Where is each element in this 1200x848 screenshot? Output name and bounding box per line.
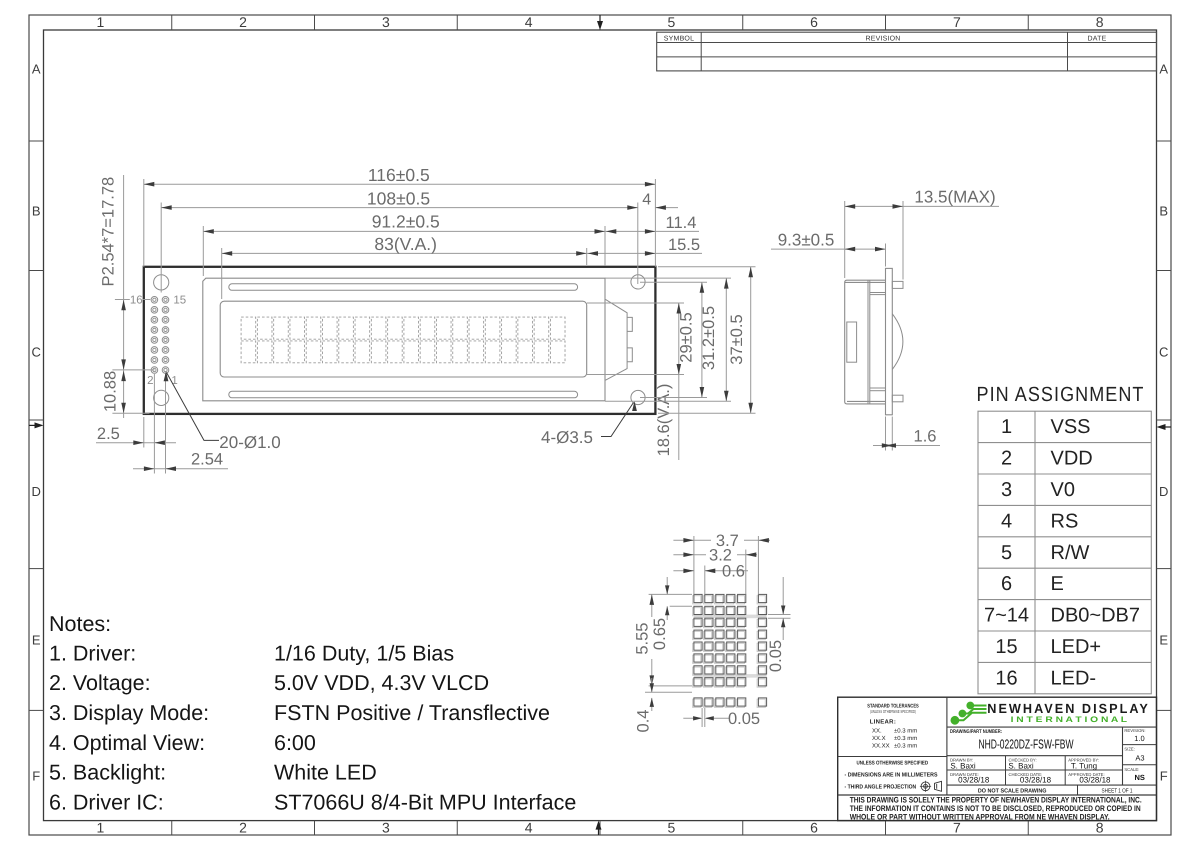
svg-text:6: 6	[810, 14, 818, 30]
svg-text:15: 15	[995, 636, 1017, 658]
svg-text:5.0V VDD, 4.3V VLCD: 5.0V VDD, 4.3V VLCD	[274, 671, 489, 695]
svg-text:8: 8	[1096, 820, 1104, 836]
svg-text:1. Driver:: 1. Driver:	[49, 641, 136, 665]
svg-text:(UNLESS OTHERWISE SPECIFIED): (UNLESS OTHERWISE SPECIFIED)	[870, 709, 916, 714]
svg-text:4: 4	[1001, 510, 1012, 532]
svg-text:5.55: 5.55	[634, 623, 652, 655]
svg-text:S. Baxi: S. Baxi	[950, 761, 976, 770]
svg-text:R/W: R/W	[1051, 542, 1090, 564]
svg-text:SYMBOL: SYMBOL	[664, 36, 694, 43]
svg-text:SIZE:: SIZE:	[1124, 746, 1134, 751]
svg-text:0.05: 0.05	[767, 640, 785, 672]
svg-text:03/28/18: 03/28/18	[958, 775, 990, 784]
svg-text:SCALE:: SCALE:	[1124, 767, 1139, 772]
svg-text:White LED: White LED	[274, 761, 377, 785]
svg-text:15: 15	[173, 294, 186, 306]
svg-text:6: 6	[1001, 573, 1012, 595]
svg-text:XX.X: XX.X	[872, 735, 886, 742]
svg-text:I N T E R N A T I O N A L: I N T E R N A T I O N A L	[1011, 715, 1128, 724]
svg-text:DRAWING/PART NUMBER:: DRAWING/PART NUMBER:	[950, 729, 1002, 735]
svg-text:9.3±0.5: 9.3±0.5	[778, 231, 835, 250]
svg-text:0.6: 0.6	[722, 562, 745, 580]
svg-text:16: 16	[995, 667, 1017, 689]
svg-text:V0: V0	[1051, 479, 1075, 501]
svg-text:C: C	[32, 345, 41, 360]
svg-text:2: 2	[239, 14, 247, 30]
svg-text:E: E	[1051, 573, 1064, 595]
svg-text:PIN ASSIGNMENT: PIN ASSIGNMENT	[977, 383, 1145, 406]
svg-text:B: B	[1159, 204, 1168, 219]
svg-text:108±0.5: 108±0.5	[367, 189, 430, 209]
svg-text:NHD-0220DZ-FSW-FBW: NHD-0220DZ-FSW-FBW	[979, 737, 1074, 752]
svg-text:1: 1	[97, 820, 105, 836]
svg-text:0.65: 0.65	[651, 618, 669, 650]
svg-text:RS: RS	[1051, 510, 1079, 532]
svg-text:DATE: DATE	[1088, 36, 1107, 43]
svg-text:WHOLE OR PART WITHOUT WRITTEN: WHOLE OR PART WITHOUT WRITTEN APPROVAL F…	[850, 812, 1110, 821]
svg-text:NEWHAVEN DISPLAY: NEWHAVEN DISPLAY	[987, 701, 1150, 716]
svg-text:P2.54*7=17.78: P2.54*7=17.78	[99, 177, 117, 287]
svg-text:A: A	[32, 62, 41, 77]
svg-text:116±0.5: 116±0.5	[368, 165, 430, 185]
svg-text:5: 5	[1001, 542, 1012, 564]
svg-text:2.5: 2.5	[97, 425, 120, 443]
svg-text:B: B	[32, 204, 41, 219]
svg-text:LINEAR:: LINEAR:	[870, 719, 896, 726]
svg-text:37±0.5: 37±0.5	[728, 314, 746, 364]
svg-text:LED+: LED+	[1051, 636, 1102, 658]
svg-text:31.2±0.5: 31.2±0.5	[700, 306, 718, 370]
svg-text:D: D	[32, 484, 41, 499]
svg-text:E: E	[32, 633, 41, 648]
svg-text:F: F	[32, 769, 40, 784]
svg-text:- THIRD ANGLE PROJECTION: - THIRD ANGLE PROJECTION	[845, 784, 917, 791]
svg-text:XX.: XX.	[872, 727, 882, 734]
svg-text:2. Voltage:: 2. Voltage:	[49, 671, 151, 695]
svg-text:3: 3	[382, 820, 390, 836]
svg-text:UNLESS OTHERWISE SPECIFIED: UNLESS OTHERWISE SPECIFIED	[856, 760, 928, 766]
svg-text:A: A	[1159, 62, 1168, 77]
svg-text:4. Optimal View:: 4. Optimal View:	[49, 731, 205, 755]
svg-text:NS: NS	[1134, 773, 1144, 782]
svg-text:FSTN Positive / Transflective: FSTN Positive / Transflective	[274, 701, 550, 725]
svg-text:1: 1	[1001, 416, 1012, 438]
svg-text:4: 4	[642, 192, 651, 209]
svg-text:4: 4	[525, 14, 533, 30]
svg-text:2: 2	[1001, 448, 1012, 470]
svg-text:7~14: 7~14	[984, 605, 1029, 627]
svg-text:D: D	[1159, 484, 1168, 499]
svg-text:A3: A3	[1135, 754, 1144, 763]
svg-text:5: 5	[668, 820, 676, 836]
svg-text:SHEET 1 OF 1: SHEET 1 OF 1	[1102, 787, 1134, 794]
svg-text:Notes:: Notes:	[49, 612, 111, 636]
svg-text:ST7066U 8/4-Bit MPU Interface: ST7066U 8/4-Bit MPU Interface	[274, 791, 576, 815]
svg-text:8: 8	[1096, 14, 1104, 30]
svg-text:6. Driver IC:: 6. Driver IC:	[49, 791, 164, 815]
svg-text:REVISION: REVISION	[865, 36, 900, 43]
svg-text:T. Tung: T. Tung	[1071, 761, 1097, 770]
svg-text:1.6: 1.6	[914, 428, 937, 446]
svg-text:0.4: 0.4	[635, 710, 653, 733]
svg-text:10.88: 10.88	[101, 371, 119, 412]
svg-text:XX.XX: XX.XX	[872, 743, 890, 750]
svg-text:83(V.A.): 83(V.A.)	[374, 234, 437, 254]
svg-text:1/16 Duty, 1/5 Bias: 1/16 Duty, 1/5 Bias	[274, 641, 454, 665]
svg-text:11.4: 11.4	[666, 214, 697, 232]
svg-text:4: 4	[525, 820, 533, 836]
svg-text:5: 5	[668, 14, 676, 30]
svg-text:LED-: LED-	[1051, 667, 1097, 689]
svg-text:6: 6	[810, 820, 818, 836]
svg-text:18.6(V.A.): 18.6(V.A.)	[655, 384, 673, 457]
svg-text:3: 3	[382, 14, 390, 30]
svg-text:VSS: VSS	[1051, 416, 1091, 438]
svg-text:16: 16	[130, 294, 143, 306]
svg-text:3: 3	[1001, 479, 1012, 501]
svg-text:13.5(MAX): 13.5(MAX)	[914, 188, 995, 207]
svg-text:±0.3 mm: ±0.3 mm	[894, 735, 917, 742]
svg-text:S. Baxi: S. Baxi	[1008, 761, 1034, 770]
svg-text:2: 2	[239, 820, 247, 836]
svg-text:2.54: 2.54	[191, 451, 223, 469]
svg-text:91.2±0.5: 91.2±0.5	[372, 212, 440, 232]
svg-text:DO NOT SCALE DRAWING: DO NOT SCALE DRAWING	[978, 787, 1047, 794]
svg-text:1: 1	[97, 14, 105, 30]
svg-text:REVISION:: REVISION:	[1124, 728, 1145, 733]
svg-text:±0.3 mm: ±0.3 mm	[894, 743, 917, 750]
svg-text:DB0~DB7: DB0~DB7	[1051, 605, 1141, 627]
svg-text:- DIMENSIONS ARE IN MILLIMETER: - DIMENSIONS ARE IN MILLIMETERS	[845, 771, 938, 778]
svg-text:E: E	[1159, 633, 1168, 648]
svg-text:F: F	[1160, 769, 1168, 784]
svg-text:C: C	[1159, 345, 1168, 360]
svg-text:20-Ø1.0: 20-Ø1.0	[219, 433, 280, 452]
svg-text:±0.3 mm: ±0.3 mm	[894, 727, 917, 734]
svg-text:1.0: 1.0	[1134, 734, 1144, 743]
svg-text:6:00: 6:00	[274, 731, 316, 755]
svg-text:VDD: VDD	[1051, 448, 1093, 470]
svg-text:03/28/18: 03/28/18	[1020, 775, 1052, 784]
svg-text:29±0.5: 29±0.5	[678, 312, 696, 362]
svg-text:5. Backlight:: 5. Backlight:	[49, 761, 166, 785]
svg-text:7: 7	[953, 14, 961, 30]
svg-text:4-Ø3.5: 4-Ø3.5	[541, 428, 593, 447]
svg-text:2: 2	[147, 375, 153, 387]
svg-text:3. Display Mode:: 3. Display Mode:	[49, 701, 209, 725]
svg-text:7: 7	[953, 820, 961, 836]
svg-text:03/28/18: 03/28/18	[1079, 775, 1111, 784]
svg-text:1: 1	[171, 375, 177, 387]
svg-text:0.05: 0.05	[728, 710, 760, 728]
svg-text:15.5: 15.5	[668, 236, 700, 254]
